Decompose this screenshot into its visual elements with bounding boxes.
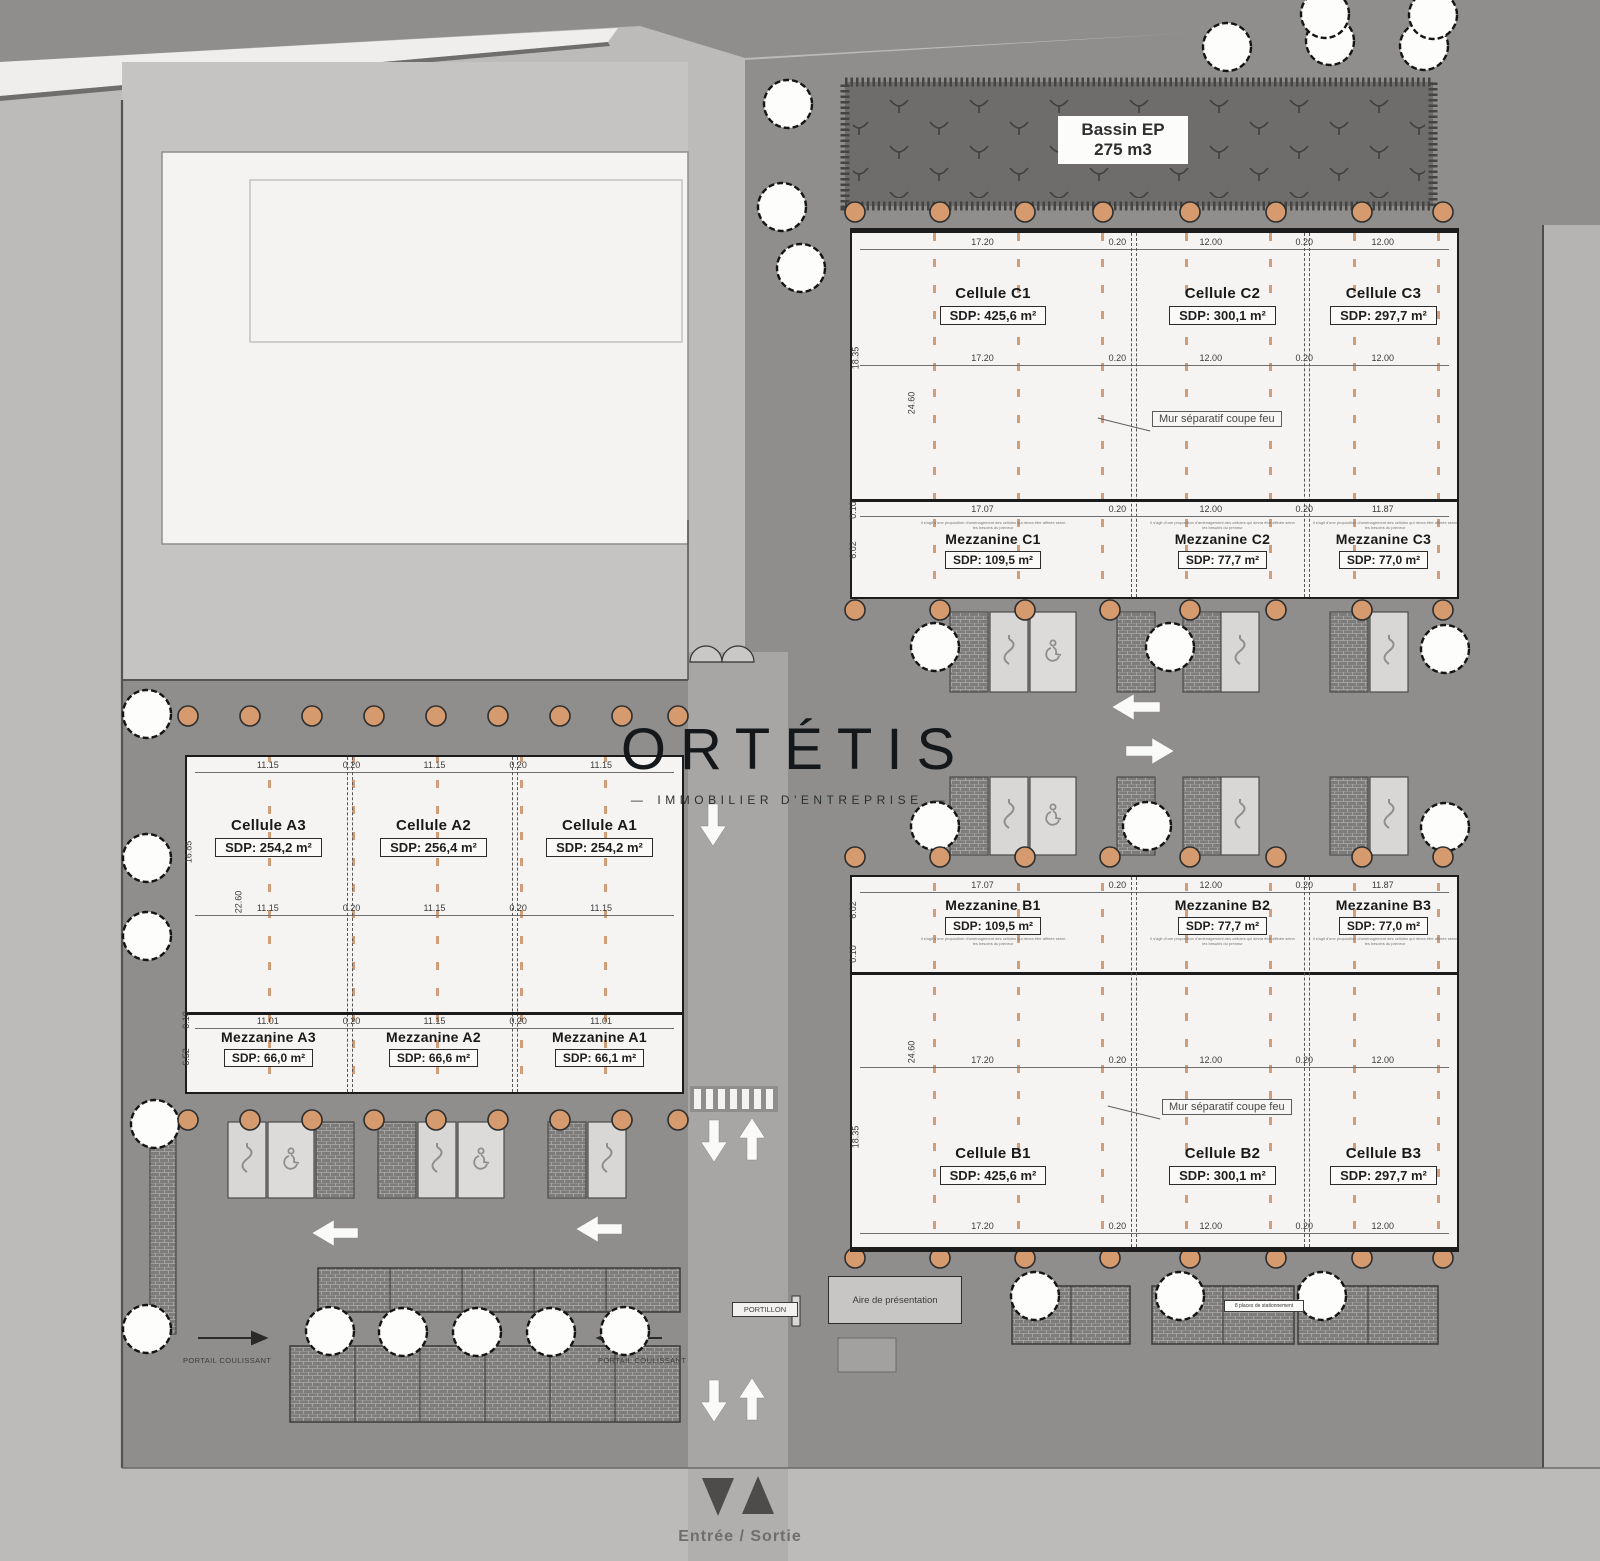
dim-c-side-4: 6.02 xyxy=(848,541,858,559)
tree-icon xyxy=(1011,1272,1059,1320)
basin-label-line2: 275 m3 xyxy=(1060,140,1186,160)
mezzanine-b2-sdp: SDP: 77,7 m² xyxy=(1178,917,1267,935)
dim-b-side-2: 0.10 xyxy=(848,945,858,963)
cell-c2-sdp: SDP: 300,1 m² xyxy=(1169,306,1276,325)
dim-a-side-2: 22.60 xyxy=(233,891,243,914)
mezzanine-c2: Il s'agit d'une proposition d'aménagemen… xyxy=(1136,519,1309,569)
wall-b2-b3 xyxy=(1304,877,1310,1247)
cell-a1: Cellule A1 SDP: 254,2 m² xyxy=(517,817,682,857)
dim-b-side-4: 18.35 xyxy=(850,1126,860,1149)
mezzanine-c3-name: Mezzanine C3 xyxy=(1310,531,1457,547)
wall-b1-b2 xyxy=(1131,877,1137,1247)
dims-b-mezz: 17.07 0.20 12.00 0.20 11.87 xyxy=(858,880,1451,893)
tree-icon xyxy=(1298,1272,1346,1320)
mezzanine-c3: Il s'agit d'une proposition d'aménagemen… xyxy=(1310,519,1457,569)
basin-label: Bassin EP 275 m3 xyxy=(1058,116,1188,164)
cell-b1: Cellule B1 SDP: 425,6 m² xyxy=(852,1145,1134,1185)
tree-icon xyxy=(1421,625,1469,673)
dim-c-side-3: 0.10 xyxy=(848,501,858,519)
tree-icon xyxy=(911,623,959,671)
mezzanine-b1-sdp: SDP: 109,5 m² xyxy=(945,917,1041,935)
neighbour-parcel xyxy=(122,62,688,680)
disclaimer-note: Il s'agit d'une proposition d'aménagemen… xyxy=(1310,936,1460,946)
cell-a1-name: Cellule A1 xyxy=(517,817,682,834)
dim-a-side-1: 16.85 xyxy=(183,841,193,864)
firewall-label-b: Mur séparatif coupe feu xyxy=(1162,1099,1292,1115)
dims-b-mid: 17.20 0.20 12.00 0.20 12.00 xyxy=(858,1055,1451,1068)
dims-b-bottom: 17.20 0.20 12.00 0.20 12.00 xyxy=(858,1221,1451,1234)
firewall-label-c: Mur séparatif coupe feu xyxy=(1152,411,1282,427)
mezzanine-b1-name: Mezzanine B1 xyxy=(852,897,1134,913)
tree-icon xyxy=(527,1308,575,1356)
hedge xyxy=(150,1136,176,1334)
disclaimer-note: Il s'agit d'une proposition d'aménagemen… xyxy=(918,936,1068,946)
cell-a3-name: Cellule A3 xyxy=(187,817,350,834)
presentation-area-label: Aire de présentation xyxy=(828,1276,962,1324)
tree-icon xyxy=(306,1307,354,1355)
tree-icon xyxy=(1146,623,1194,671)
mezzanine-c2-name: Mezzanine C2 xyxy=(1136,531,1309,547)
mezzanine-c3-sdp: SDP: 77,0 m² xyxy=(1339,551,1428,569)
cell-c2-name: Cellule C2 xyxy=(1136,285,1309,302)
cell-c1-name: Cellule C1 xyxy=(852,285,1134,302)
disclaimer-note: Il s'agit d'une proposition d'aménagemen… xyxy=(1310,520,1460,530)
dims-a-mezz: 11.01 0.20 11.15 0.20 11.01 xyxy=(193,1016,676,1029)
mezzanine-c1-name: Mezzanine C1 xyxy=(852,531,1134,547)
dim-b-side-1: 6.02 xyxy=(848,901,858,919)
mezzanine-a2-name: Mezzanine A2 xyxy=(352,1029,515,1045)
cell-c1-sdp: SDP: 425,6 m² xyxy=(940,306,1047,325)
logo-dash-left: — xyxy=(631,793,648,807)
ortetis-logo: ORTÉTIS — IMMOBILIER D'ENTREPRISE — xyxy=(580,716,1000,807)
logo-dash-right: — xyxy=(933,793,950,807)
entrance-exit-label: Entrée / Sortie xyxy=(640,1528,840,1546)
tree-icon xyxy=(601,1307,649,1355)
cell-b1-name: Cellule B1 xyxy=(852,1145,1134,1162)
tree-icon xyxy=(1301,0,1349,38)
mezzanine-b1: Mezzanine B1 SDP: 109,5 m² Il s'agit d'u… xyxy=(852,897,1134,947)
mezzanine-strip-c: 17.07 0.20 12.00 0.20 11.87 Il s'agit d'… xyxy=(852,499,1457,595)
cell-a2-sdp: SDP: 256,4 m² xyxy=(380,838,487,857)
tree-icon xyxy=(1156,1272,1204,1320)
mezzanine-strip-b: 17.07 0.20 12.00 0.20 11.87 Mezzanine B1… xyxy=(852,877,1457,975)
portail-right-label: PORTAIL COULISSANT xyxy=(598,1356,686,1365)
dim-b-side-3: 24.60 xyxy=(906,1041,916,1064)
building-b: 17.07 0.20 12.00 0.20 11.87 Mezzanine B1… xyxy=(850,875,1459,1252)
cell-c3-name: Cellule C3 xyxy=(1310,285,1457,302)
dims-a-mid: 11.15 0.20 11.15 0.20 11.15 xyxy=(193,903,676,916)
cell-b2-sdp: SDP: 300,1 m² xyxy=(1169,1166,1276,1185)
mezzanine-strip-a: 11.01 0.20 11.15 0.20 11.01 Mezzanine A3… xyxy=(187,1012,682,1090)
cell-c3: Cellule C3 SDP: 297,7 m² xyxy=(1310,285,1457,325)
mezzanine-a2-sdp: SDP: 66,6 m² xyxy=(389,1049,478,1067)
dims-c-mezz: 17.07 0.20 12.00 0.20 11.87 xyxy=(858,504,1451,517)
dims-c-mid: 17.20 0.20 12.00 0.20 12.00 xyxy=(858,353,1451,366)
cell-b1-sdp: SDP: 425,6 m² xyxy=(940,1166,1047,1185)
tree-icon xyxy=(453,1308,501,1356)
utility-pad xyxy=(838,1338,896,1372)
cell-c1: Cellule C1 SDP: 425,6 m² xyxy=(852,285,1134,325)
mezzanine-b3-sdp: SDP: 77,0 m² xyxy=(1339,917,1428,935)
mezzanine-a3: Mezzanine A3 SDP: 66,0 m² xyxy=(187,1029,350,1067)
mezzanine-c1: Il s'agit d'une proposition d'aménagemen… xyxy=(852,519,1134,569)
tree-icon xyxy=(123,912,171,960)
mezzanine-a2: Mezzanine A2 SDP: 66,6 m² xyxy=(352,1029,515,1067)
cell-c3-sdp: SDP: 297,7 m² xyxy=(1330,306,1437,325)
parking-stalls-a xyxy=(228,1122,626,1198)
tree-icon xyxy=(123,690,171,738)
tree-icon xyxy=(123,834,171,882)
parking-count-label: 8 places de stationnement xyxy=(1224,1300,1304,1312)
mezzanine-a3-sdp: SDP: 66,0 m² xyxy=(224,1049,313,1067)
cell-b3-name: Cellule B3 xyxy=(1310,1145,1457,1162)
mezzanine-a1-name: Mezzanine A1 xyxy=(517,1029,682,1045)
tree-icon xyxy=(131,1100,179,1148)
cell-b2-name: Cellule B2 xyxy=(1136,1145,1309,1162)
cell-b2: Cellule B2 SDP: 300,1 m² xyxy=(1136,1145,1309,1185)
logo-subtitle: IMMOBILIER D'ENTREPRISE xyxy=(657,793,922,807)
dim-a-side-3: 0.10 xyxy=(181,1011,191,1029)
building-c: 17.20 0.20 12.00 0.20 12.00 Cellule C1 S… xyxy=(850,228,1459,599)
cell-c2: Cellule C2 SDP: 300,1 m² xyxy=(1136,285,1309,325)
tree-icon xyxy=(758,183,806,231)
tree-icon xyxy=(1421,803,1469,851)
mezzanine-c2-sdp: SDP: 77,7 m² xyxy=(1178,551,1267,569)
cell-a1-sdp: SDP: 254,2 m² xyxy=(546,838,653,857)
tree-icon xyxy=(777,244,825,292)
neighbour-building xyxy=(162,152,688,544)
tree-icon xyxy=(379,1308,427,1356)
mezzanine-b2: Mezzanine B2 SDP: 77,7 m² Il s'agit d'un… xyxy=(1136,897,1309,947)
tree-icon xyxy=(911,802,959,850)
site-plan: 17.20 0.20 12.00 0.20 12.00 Cellule C1 S… xyxy=(0,0,1600,1561)
mezzanine-a3-name: Mezzanine A3 xyxy=(187,1029,350,1045)
cell-b3-sdp: SDP: 297,7 m² xyxy=(1330,1166,1437,1185)
logo-title: ORTÉTIS xyxy=(590,716,1000,783)
portail-left-label: PORTAIL COULISSANT xyxy=(183,1356,271,1365)
mezzanine-c1-sdp: SDP: 109,5 m² xyxy=(945,551,1041,569)
tree-icon xyxy=(123,1305,171,1353)
cell-a2-name: Cellule A2 xyxy=(352,817,515,834)
dim-c-side-2: 24.60 xyxy=(906,392,916,415)
dim-a-side-4: 6.52 xyxy=(181,1048,191,1066)
tree-icon xyxy=(1203,23,1251,71)
cell-a2: Cellule A2 SDP: 256,4 m² xyxy=(352,817,515,857)
dims-c-top: 17.20 0.20 12.00 0.20 12.00 xyxy=(858,237,1451,250)
crosswalk xyxy=(690,1086,778,1112)
tree-icon xyxy=(764,80,812,128)
basin-label-line1: Bassin EP xyxy=(1060,120,1186,140)
disclaimer-note: Il s'agit d'une proposition d'aménagemen… xyxy=(918,520,1068,530)
cell-a3-sdp: SDP: 254,2 m² xyxy=(215,838,322,857)
disclaimer-note: Il s'agit d'une proposition d'aménagemen… xyxy=(1148,520,1298,530)
cell-b3: Cellule B3 SDP: 297,7 m² xyxy=(1310,1145,1457,1185)
disclaimer-note: Il s'agit d'une proposition d'aménagemen… xyxy=(1148,936,1298,946)
mezzanine-a1-sdp: SDP: 66,1 m² xyxy=(555,1049,644,1067)
dim-c-side-1: 18.35 xyxy=(850,347,860,370)
tree-icon xyxy=(1409,0,1457,39)
mezzanine-b2-name: Mezzanine B2 xyxy=(1136,897,1309,913)
mezzanine-b3-name: Mezzanine B3 xyxy=(1310,897,1457,913)
tree-icon xyxy=(1123,802,1171,850)
mezzanine-a1: Mezzanine A1 SDP: 66,1 m² xyxy=(517,1029,682,1067)
mezzanine-b3: Mezzanine B3 SDP: 77,0 m² Il s'agit d'un… xyxy=(1310,897,1457,947)
portillon-label: PORTILLON xyxy=(732,1302,798,1317)
cell-a3: Cellule A3 SDP: 254,2 m² xyxy=(187,817,350,857)
